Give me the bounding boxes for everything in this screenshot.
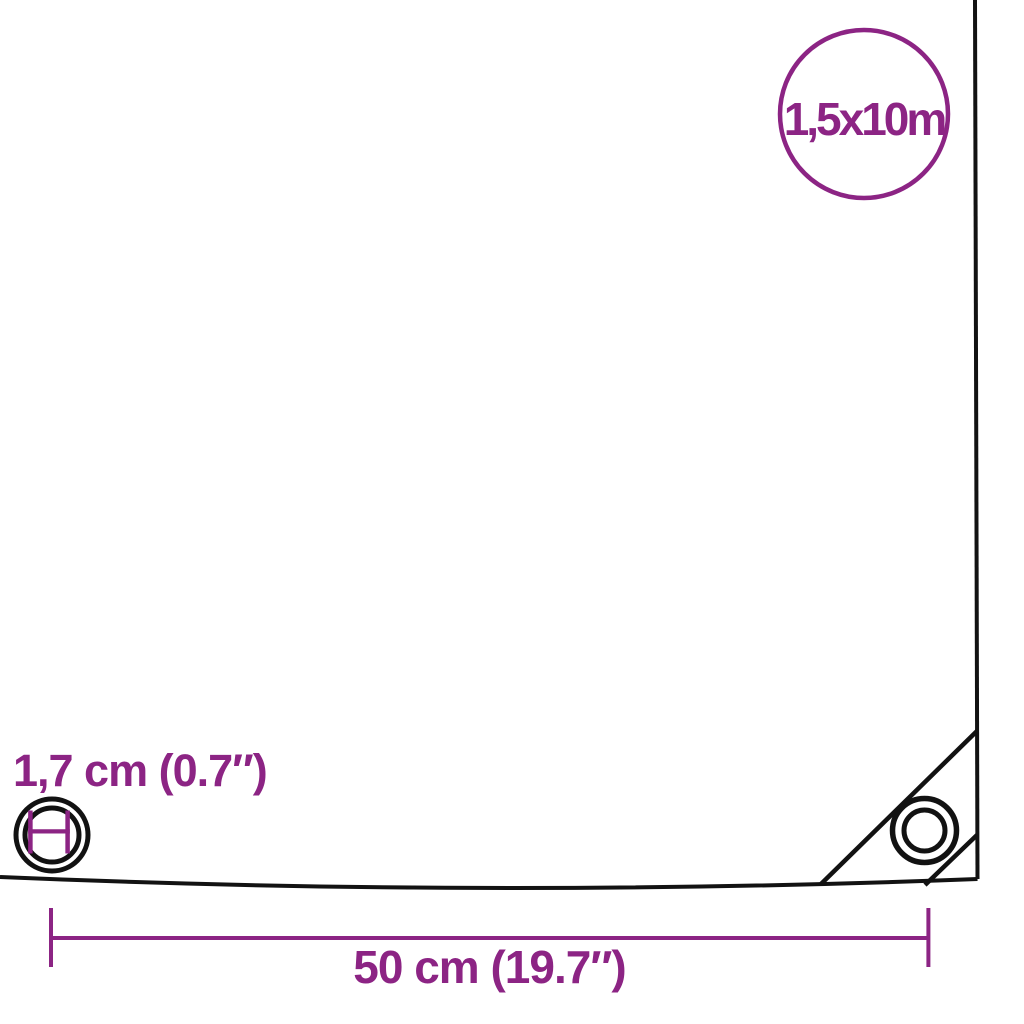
corner-eyelet-hole [904,810,945,851]
size-badge-label: 1,5x10m [754,96,974,142]
tarpaulin-dimension-diagram: 1,5x10m 1,7 cm (0.7″) 50 cm (19.7″) [0,0,1024,1024]
diagram-artwork [0,0,1024,1024]
tarp-bottom-edge [0,877,978,888]
tarp-right-edge [975,0,978,879]
width-dimension-label: 50 cm (19.7″) [50,944,929,990]
eyelet-dimension-label: 1,7 cm (0.7″) [13,748,267,793]
